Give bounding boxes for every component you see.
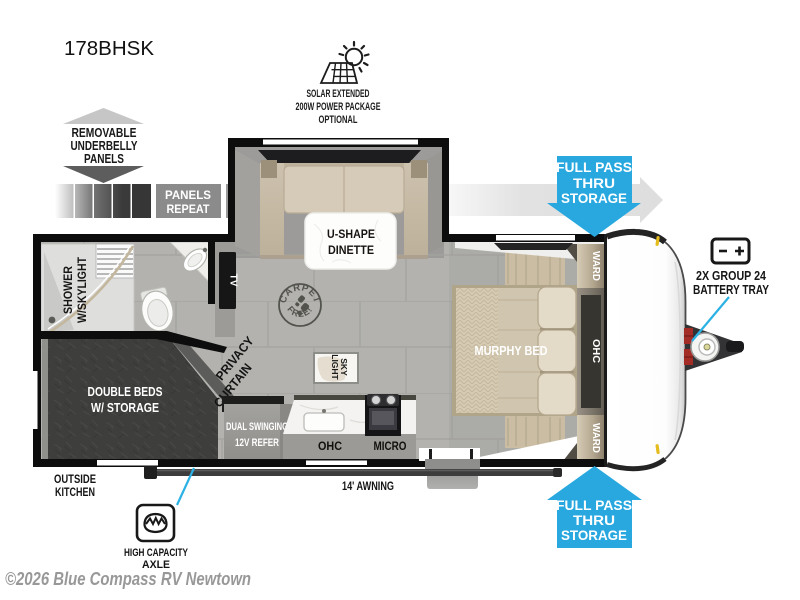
svg-text:U-SHAPE: U-SHAPE — [327, 227, 375, 241]
svg-text:HIGH CAPACITY: HIGH CAPACITY — [124, 547, 188, 559]
svg-text:STORAGE: STORAGE — [561, 528, 627, 543]
svg-text:THRU: THRU — [573, 513, 615, 528]
svg-text:DINETTE: DINETTE — [328, 243, 374, 257]
svg-text:SHOWER: SHOWER — [63, 265, 75, 314]
svg-text:WARD: WARD — [590, 251, 602, 281]
svg-text:2X GROUP 24: 2X GROUP 24 — [696, 269, 766, 283]
svg-text:THRU: THRU — [573, 176, 615, 191]
svg-text:FULL PASS: FULL PASS — [556, 160, 632, 175]
svg-text:OUTSIDE: OUTSIDE — [54, 474, 96, 486]
svg-text:LIGHT: LIGHT — [330, 354, 340, 380]
svg-text:W/SKYLIGHT: W/SKYLIGHT — [77, 257, 89, 323]
svg-text:DUAL SWINGING: DUAL SWINGING — [226, 421, 288, 433]
svg-text:200W POWER PACKAGE: 200W POWER PACKAGE — [296, 101, 381, 113]
svg-text:12V REFER: 12V REFER — [235, 437, 279, 449]
svg-text:KITCHEN: KITCHEN — [55, 487, 95, 499]
svg-text:MURPHY BED: MURPHY BED — [475, 343, 548, 358]
svg-text:DOUBLE BEDS: DOUBLE BEDS — [88, 384, 163, 399]
svg-text:OHC: OHC — [318, 441, 342, 453]
svg-text:FULL PASS: FULL PASS — [556, 498, 632, 513]
svg-text:WARD: WARD — [590, 423, 602, 453]
svg-text:STORAGE: STORAGE — [561, 191, 627, 206]
svg-text:SOLAR EXTENDED: SOLAR EXTENDED — [307, 88, 370, 100]
svg-text:TV: TV — [228, 274, 239, 287]
svg-text:W/ STORAGE: W/ STORAGE — [91, 400, 159, 415]
svg-text:©2026 Blue Compass RV Newtown: ©2026 Blue Compass RV Newtown — [5, 569, 251, 589]
svg-text:REPEAT: REPEAT — [167, 202, 211, 216]
svg-text:MICRO: MICRO — [374, 441, 407, 453]
svg-text:OPTIONAL: OPTIONAL — [319, 114, 358, 126]
svg-text:178BHSK: 178BHSK — [64, 37, 154, 60]
svg-text:PANELS: PANELS — [84, 151, 124, 166]
svg-text:OHC: OHC — [590, 339, 602, 363]
svg-text:14' AWNING: 14' AWNING — [342, 479, 394, 493]
svg-text:PANELS: PANELS — [165, 188, 211, 202]
svg-text:BATTERY TRAY: BATTERY TRAY — [693, 283, 770, 297]
